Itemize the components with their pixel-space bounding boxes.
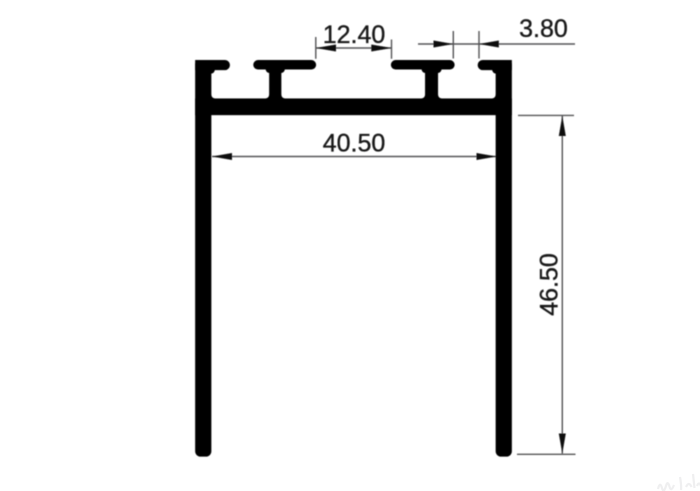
svg-text:46.50: 46.50 xyxy=(536,253,564,316)
svg-text:12.40: 12.40 xyxy=(323,21,386,49)
svg-text:3.80: 3.80 xyxy=(519,15,568,43)
svg-text:40.50: 40.50 xyxy=(323,130,386,158)
